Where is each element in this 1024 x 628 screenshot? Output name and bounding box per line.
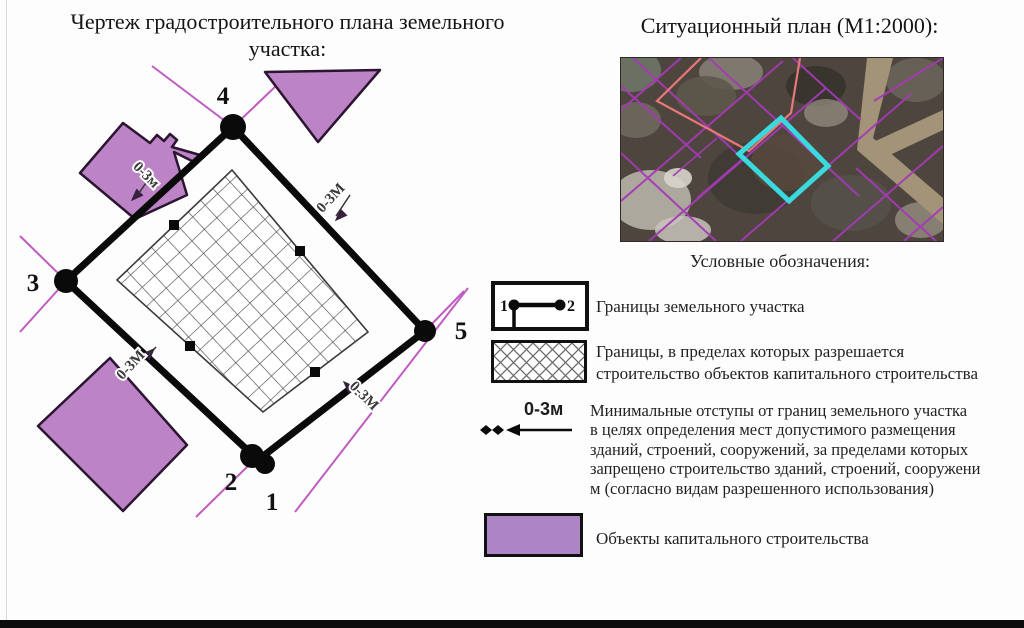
setback-desc-line4: запрещено строительство зданий, строений… [590, 459, 1024, 478]
legend-item-buildable-area: Границы, в пределах которых разрешается … [596, 341, 1024, 385]
legend-symbol-plot-boundary: 1 2 [491, 281, 589, 331]
legend-symbol-capital-construction [484, 513, 583, 557]
boundary-symbol-graphic: 1 2 [495, 285, 585, 327]
situational-plan-title: Ситуационный план (М1:2000): [602, 12, 977, 39]
situational-map-image [621, 58, 943, 241]
buildable-area-label-line1: Границы, в пределах которых разрешается [596, 341, 1024, 363]
setback-symbol-graphic [480, 421, 576, 439]
legend-heading: Условные обозначения: [640, 250, 920, 272]
setback-desc-line5: м (согласно видам разрешенного использов… [590, 479, 1024, 498]
building-bottom-left [38, 358, 187, 511]
bottom-black-bar [0, 620, 1024, 628]
legend-symbol-buildable-area [491, 340, 587, 383]
document-page: Чертеж градостроительного плана земельно… [0, 0, 1024, 628]
setback-label-bottom-right: 0-3М [346, 378, 381, 413]
vertex-label-5: 5 [455, 318, 468, 345]
legend-item-capital-construction-label: Объекты капитального строительства [596, 528, 1016, 550]
vertex-label-4: 4 [217, 83, 230, 110]
vertex-label-3: 3 [27, 270, 40, 297]
building-top-right-triangle [265, 70, 380, 142]
vertex-label-2: 2 [225, 469, 238, 496]
boundary-symbol-point1: 1 [500, 298, 508, 315]
legend-item-setback-description: Минимальные отступы от границ земельного… [590, 401, 1024, 498]
buildable-area-label-line2: строительство объектов капитального стро… [596, 363, 1024, 385]
legend-item-plot-boundary-label: Границы земельного участка [596, 296, 1016, 318]
vertex-label-1: 1 [266, 489, 279, 516]
boundary-symbol-point2: 2 [567, 298, 575, 315]
setback-desc-line1: Минимальные отступы от границ земельного… [590, 401, 1024, 420]
setback-desc-line3: зданий, строений, сооружений, за предела… [590, 440, 1024, 459]
situational-map [620, 57, 944, 242]
hatch-symbol-graphic [494, 343, 584, 380]
setback-label-top-right: 0-3М [314, 180, 349, 216]
plot-drawing: 4 3 5 2 1 0-3м 0-3М 0-3М 0-3М [0, 0, 500, 620]
setback-desc-line2: в целях определения мест допустимого раз… [590, 420, 1024, 439]
